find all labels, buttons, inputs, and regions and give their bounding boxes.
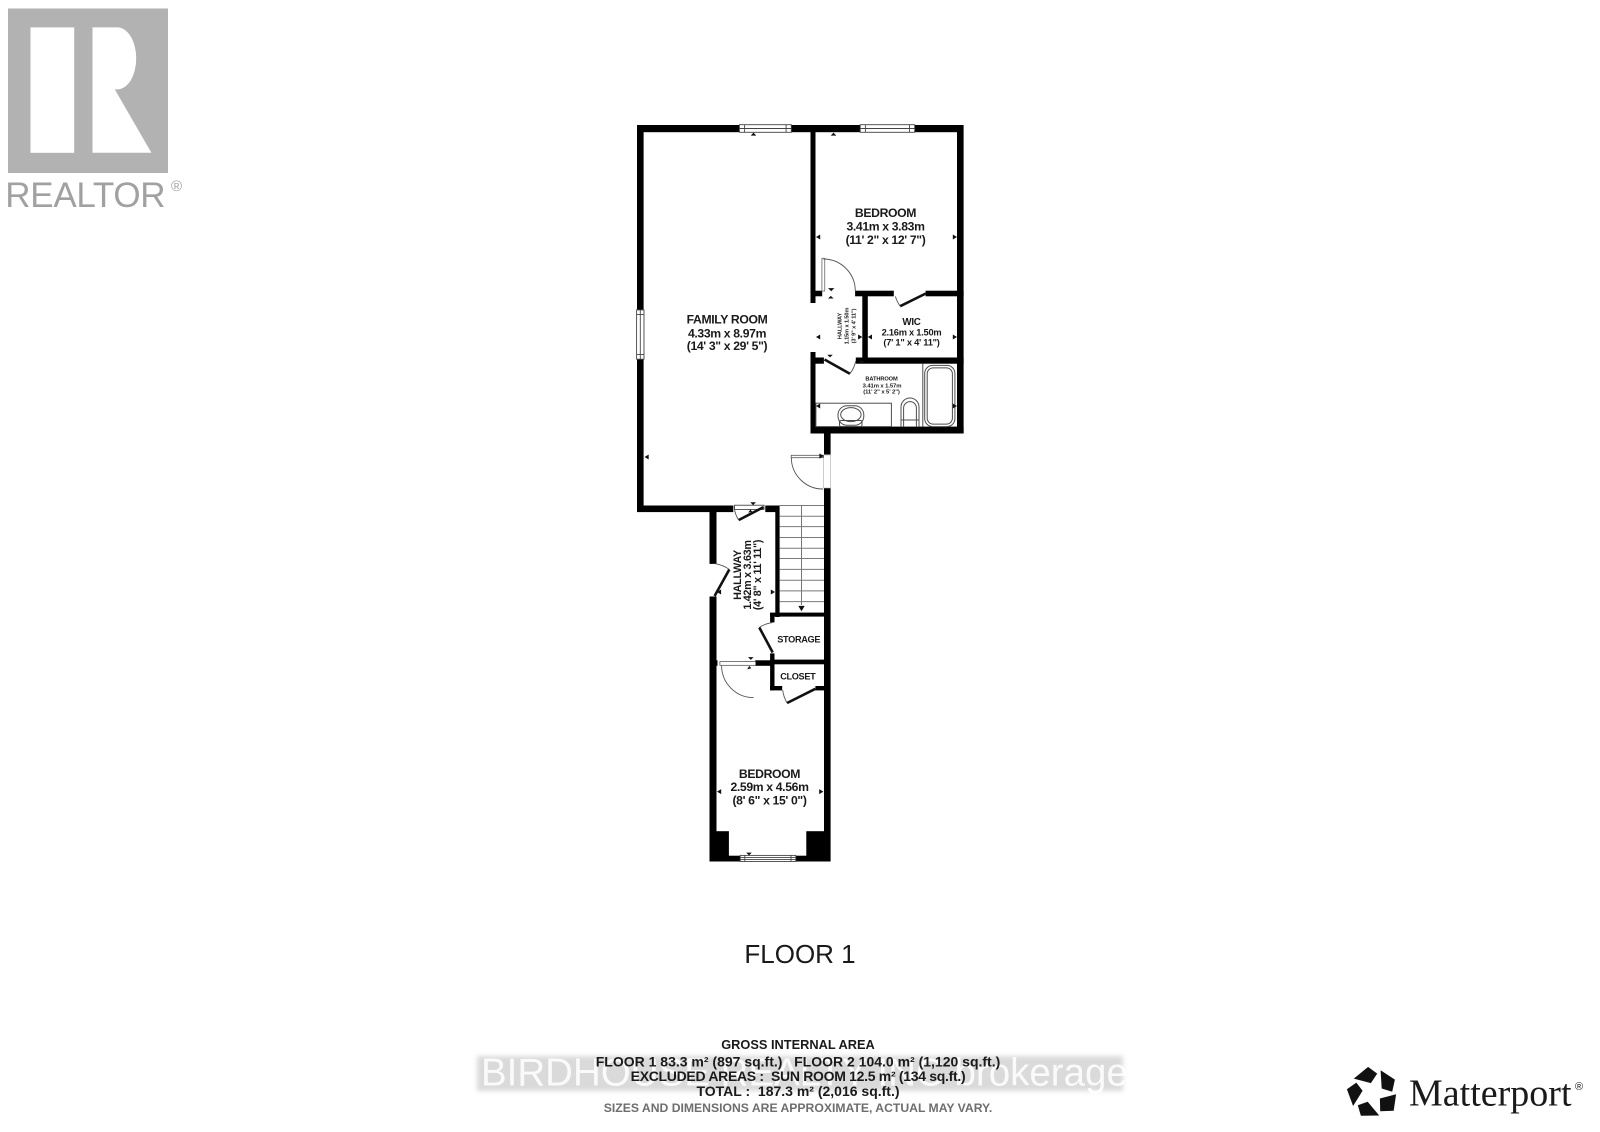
svg-text:®: ® <box>1575 1081 1583 1093</box>
svg-text:(4' 8" x 11' 11"): (4' 8" x 11' 11") <box>752 539 764 610</box>
svg-text:(11' 2" x 12' 7"): (11' 2" x 12' 7") <box>846 233 926 247</box>
svg-text:2.59m x 4.56m: 2.59m x 4.56m <box>730 780 809 794</box>
svg-text:®: ® <box>171 178 182 195</box>
svg-text:FLOOR 1 83.3 m² (897 sq.ft.): FLOOR 1 83.3 m² (897 sq.ft.) FLOOR 2 104… <box>596 1053 1001 1069</box>
svg-text:EXCLUDED AREAS : SUN ROOM 12.: EXCLUDED AREAS : SUN ROOM 12.5 m² (134 s… <box>631 1068 966 1084</box>
svg-text:(11' 2" x 5' 2"): (11' 2" x 5' 2") <box>863 390 900 396</box>
svg-text:FLOOR 1: FLOOR 1 <box>744 939 855 969</box>
svg-text:BATHROOM: BATHROOM <box>865 376 898 382</box>
svg-text:2.16m x 1.50m: 2.16m x 1.50m <box>882 327 942 337</box>
svg-text:4.33m x 8.97m: 4.33m x 8.97m <box>688 326 767 340</box>
svg-text:1.15m x 1.50m: 1.15m x 1.50m <box>845 308 851 345</box>
svg-text:CLOSET: CLOSET <box>780 672 816 682</box>
svg-text:HALLWAY: HALLWAY <box>837 313 843 340</box>
svg-text:3.41m x 1.57m: 3.41m x 1.57m <box>863 383 902 389</box>
svg-text:SIZES AND DIMENSIONS ARE APPRO: SIZES AND DIMENSIONS ARE APPROXIMATE, AC… <box>604 1101 992 1115</box>
svg-text:(3' 9" x 4' 11"): (3' 9" x 4' 11") <box>851 308 857 343</box>
svg-text:3.41m x 3.83m: 3.41m x 3.83m <box>846 219 925 233</box>
svg-text:(14' 3" x 29' 5"): (14' 3" x 29' 5") <box>687 339 768 353</box>
svg-text:BEDROOM: BEDROOM <box>855 206 916 220</box>
svg-text:TOTAL : 187.3 m² (2,016 sq.ft: TOTAL : 187.3 m² (2,016 sq.ft.) <box>696 1083 899 1099</box>
svg-text:(8' 6" x 15' 0"): (8' 6" x 15' 0") <box>732 793 806 807</box>
svg-text:Matterport: Matterport <box>1409 1073 1572 1115</box>
svg-text:STORAGE: STORAGE <box>777 634 820 644</box>
svg-text:(7' 1" x 4' 11"): (7' 1" x 4' 11") <box>883 338 939 348</box>
svg-text:GROSS INTERNAL AREA: GROSS INTERNAL AREA <box>721 1037 875 1052</box>
svg-text:FAMILY ROOM: FAMILY ROOM <box>687 312 768 326</box>
svg-text:REALTOR: REALTOR <box>5 176 165 215</box>
svg-text:BEDROOM: BEDROOM <box>739 767 800 781</box>
